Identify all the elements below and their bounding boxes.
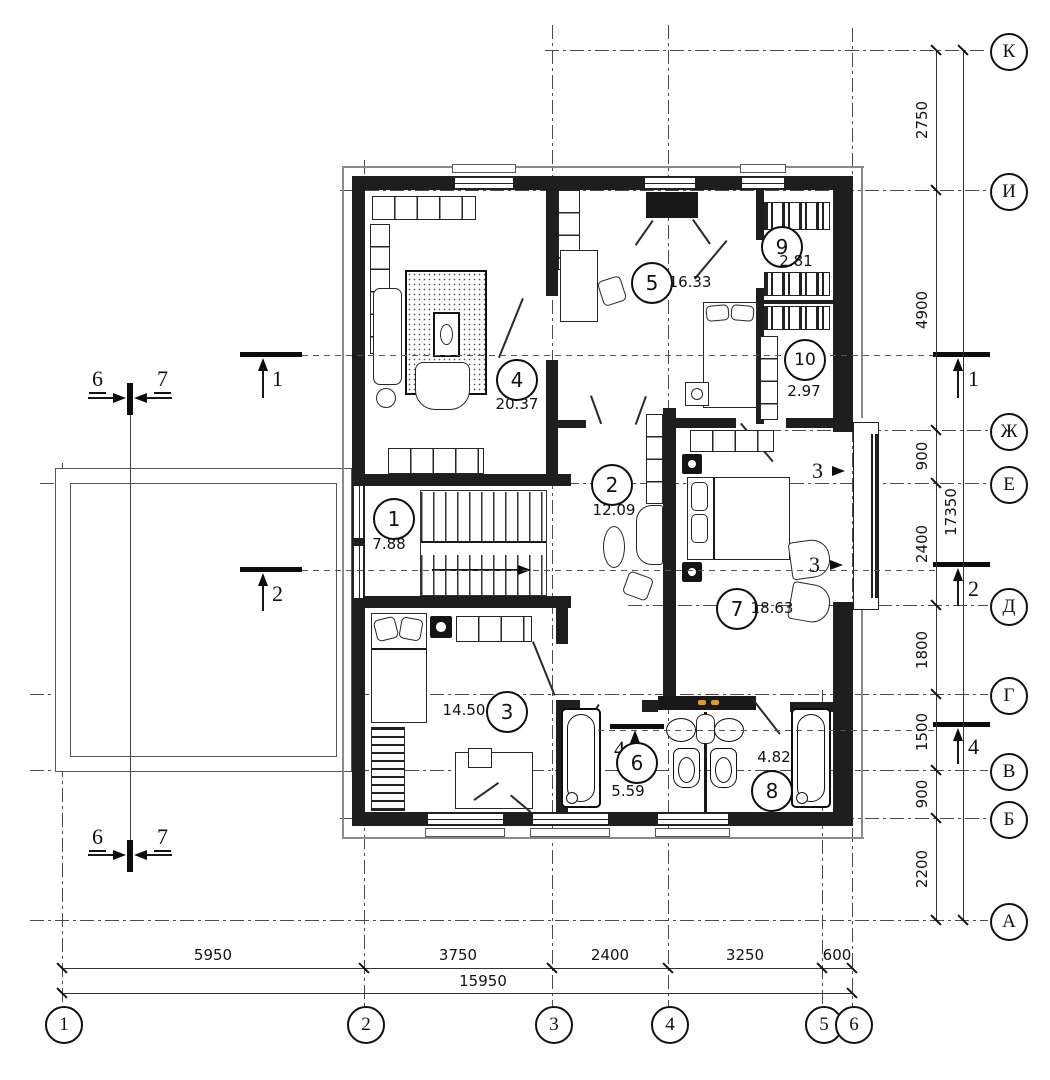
section-marker-bar bbox=[933, 562, 990, 567]
toilet-right bbox=[710, 748, 737, 788]
dim-label-bottom-total: 15950 bbox=[459, 972, 507, 990]
wall-hall-room7 bbox=[663, 408, 676, 702]
dim-label-2-3: 3750 bbox=[439, 946, 477, 964]
axis-bubble-G: Г bbox=[990, 677, 1028, 715]
section-marker-bar bbox=[933, 722, 990, 727]
room-area-4: 20.37 bbox=[496, 395, 539, 413]
wall-room4-room5-a bbox=[546, 190, 558, 296]
section-arrow-icon bbox=[134, 850, 147, 860]
closet-row-room7 bbox=[690, 430, 774, 452]
axis-bubble-2: 2 bbox=[347, 1006, 385, 1044]
section-marker-bar bbox=[610, 724, 664, 729]
dim-label-D-G: 1800 bbox=[913, 631, 931, 669]
faucet-room8 bbox=[796, 792, 808, 804]
pouf-hall bbox=[603, 526, 625, 568]
room-circle-5: 5 bbox=[631, 262, 673, 304]
chair-room5 bbox=[597, 275, 628, 307]
dim-label-3-4: 2400 bbox=[591, 946, 629, 964]
coffee-table-inner bbox=[440, 324, 453, 345]
section-label-4: 4 bbox=[968, 734, 979, 760]
axis-bubble-6: 6 bbox=[835, 1006, 873, 1044]
section-marker-vbar bbox=[127, 840, 133, 872]
sideboard-room4 bbox=[388, 448, 484, 474]
dim-label-G-V: 1500 bbox=[913, 713, 931, 751]
pillow-room5 bbox=[730, 304, 754, 322]
room-circle-6: 6 bbox=[616, 742, 658, 784]
section-arrow-stem bbox=[262, 583, 264, 611]
dim-label-K-I: 2750 bbox=[913, 101, 931, 139]
dim-label-1-2: 5950 bbox=[194, 946, 232, 964]
dim-chain-right-total bbox=[963, 50, 964, 920]
eaves-line-right-bottom bbox=[861, 610, 863, 838]
wall-right-upper bbox=[833, 176, 853, 432]
axis-line-A bbox=[30, 920, 988, 921]
section-arrow-icon bbox=[113, 393, 126, 403]
desk-item-room3 bbox=[468, 748, 492, 768]
dim-label-I-Zh: 4900 bbox=[913, 291, 931, 329]
pillow-room3 bbox=[398, 616, 423, 641]
washing-machine-drum bbox=[691, 388, 703, 400]
dim-label-4-5: 3250 bbox=[726, 946, 764, 964]
wall-closet9-10-divider bbox=[760, 300, 833, 304]
section-arrow-icon bbox=[830, 560, 843, 570]
axis-bubble-D: Д bbox=[990, 588, 1028, 626]
door-leaf-hall-room5-left bbox=[590, 395, 602, 424]
section-arrow-stem bbox=[88, 397, 116, 399]
staircase-landing-line bbox=[421, 541, 546, 543]
wall-room3-room6-a bbox=[556, 608, 568, 644]
floor-lamp-room4 bbox=[376, 388, 396, 408]
armchair-room4 bbox=[415, 362, 470, 410]
window-left-2 bbox=[352, 546, 365, 598]
window-top-3 bbox=[742, 176, 784, 190]
flue-mark-right bbox=[692, 219, 711, 245]
axis-bubble-E: Е bbox=[990, 466, 1028, 504]
section-marker-bar bbox=[240, 352, 302, 357]
window-top-1 bbox=[455, 176, 513, 190]
axis-bubble-Zh: Ж bbox=[990, 413, 1028, 451]
wall-hall-room5-a bbox=[558, 420, 586, 428]
wc-counter-fixture bbox=[698, 700, 706, 705]
room-circle-10: 10 bbox=[784, 339, 826, 381]
section-arrow-stem bbox=[144, 854, 172, 856]
sofa-room4 bbox=[373, 288, 402, 385]
section-arrow-stem bbox=[957, 578, 959, 606]
desk-room3 bbox=[455, 752, 533, 809]
flue-mark-left bbox=[635, 220, 654, 246]
staircase-upper-flight bbox=[421, 492, 546, 541]
armchair-hall bbox=[636, 505, 663, 565]
shelf-rack-closet9 bbox=[764, 202, 830, 230]
desk-room5 bbox=[560, 250, 598, 322]
window-left-1 bbox=[352, 486, 365, 538]
section-arrow-stem bbox=[957, 738, 959, 764]
window-bottom-1 bbox=[428, 812, 503, 826]
section-label-2: 2 bbox=[968, 576, 979, 602]
axis-bubble-B: Б bbox=[990, 801, 1028, 839]
room-circle-2: 2 bbox=[591, 464, 633, 506]
axis-bubble-4: 4 bbox=[651, 1006, 689, 1044]
axis-bubble-3: 3 bbox=[535, 1006, 573, 1044]
room-area-7: 18.63 bbox=[751, 599, 794, 617]
pillow-room7 bbox=[691, 514, 708, 543]
armchair-room7 bbox=[787, 581, 833, 625]
flue-room5 bbox=[646, 192, 698, 218]
shelf-rack-closet9-10 bbox=[764, 272, 830, 296]
shelf-rack-closet10 bbox=[764, 306, 830, 330]
wall-room4-stairs bbox=[365, 474, 571, 486]
pillow-room7 bbox=[691, 482, 708, 511]
staircase-lower-flight bbox=[421, 555, 546, 595]
bed-cover-line-room7 bbox=[713, 478, 715, 559]
section-marker-bar bbox=[933, 352, 990, 357]
axis-line-3 bbox=[552, 25, 553, 1006]
room-circle-1: 1 bbox=[373, 498, 415, 540]
axis-bubble-1: 1 bbox=[45, 1006, 83, 1044]
vanity-center bbox=[696, 714, 715, 744]
section-arrow-stem bbox=[144, 397, 172, 399]
section-label-6: 6 bbox=[89, 824, 106, 852]
dim-label-V-B: 900 bbox=[913, 780, 931, 809]
wc-counter bbox=[658, 696, 756, 710]
nightstand-room7 bbox=[682, 562, 702, 582]
shelf-column-hall bbox=[646, 414, 663, 504]
bay-window-glass bbox=[871, 434, 878, 598]
dim-chain-bottom bbox=[62, 968, 852, 969]
section-label-1: 1 bbox=[272, 366, 283, 392]
axis-bubble-A: А bbox=[990, 903, 1028, 941]
window-top-2 bbox=[645, 176, 695, 190]
window-sill bbox=[655, 828, 730, 837]
room-area-8: 4.82 bbox=[757, 748, 790, 766]
axis-bubble-K: К bbox=[990, 33, 1028, 71]
section-cut-2 bbox=[258, 570, 936, 571]
section-label-7: 7 bbox=[154, 366, 171, 394]
room-circle-8: 8 bbox=[751, 770, 793, 812]
wall-stairs-room3 bbox=[365, 596, 571, 608]
section-marker-vbar bbox=[127, 383, 133, 415]
wc-counter-fixture bbox=[711, 700, 719, 705]
dim-label-right-total: 17350 bbox=[942, 488, 960, 536]
section-arrow-icon bbox=[113, 850, 126, 860]
bed-cover-line-room3 bbox=[372, 648, 426, 650]
wall-room5-room7-b bbox=[786, 418, 833, 428]
room-area-2: 12.09 bbox=[593, 501, 636, 519]
axis-line-I bbox=[340, 190, 988, 191]
window-bottom-3 bbox=[658, 812, 728, 826]
section-label-3: 3 bbox=[812, 458, 823, 484]
section-label-2: 2 bbox=[272, 581, 283, 607]
section-label-7: 7 bbox=[154, 824, 171, 852]
chair-hall bbox=[622, 570, 655, 601]
eaves-line-bottom bbox=[342, 837, 864, 839]
nightstand-room3 bbox=[430, 616, 452, 638]
cabinet-row-room4 bbox=[372, 196, 476, 220]
room-area-1: 7.88 bbox=[372, 535, 405, 553]
faucet-room6 bbox=[566, 792, 578, 804]
floor-plan-drawing: 1 1 2 2 4 4 3 3 6 7 6 7 2750 490 bbox=[0, 0, 1050, 1080]
wall-right-lower bbox=[833, 602, 853, 826]
dim-label-E-D: 2400 bbox=[913, 525, 931, 563]
window-sill bbox=[452, 164, 516, 173]
section-label-1: 1 bbox=[968, 366, 979, 392]
eaves-line-right-top bbox=[861, 166, 863, 418]
section-arrow-stem bbox=[88, 854, 116, 856]
axis-line-K bbox=[545, 50, 988, 51]
wall-room4-room5-b bbox=[546, 360, 558, 474]
dim-chain-bottom-total bbox=[62, 993, 852, 994]
shelf-row-room3 bbox=[456, 616, 532, 642]
section-arrow-icon bbox=[832, 466, 845, 476]
door-leaf-room4 bbox=[498, 298, 524, 358]
axis-bubble-V: В bbox=[990, 753, 1028, 791]
section-arrow-stem bbox=[262, 368, 264, 398]
room-area-3: 14.50 bbox=[443, 701, 486, 719]
room-area-10: 2.97 bbox=[787, 382, 820, 400]
wardrobe-room3 bbox=[371, 727, 405, 811]
section-cut-1 bbox=[258, 355, 936, 356]
wall-closet9-a bbox=[756, 190, 764, 240]
dim-label-Zh-E: 900 bbox=[913, 442, 931, 471]
section-cut-4 bbox=[598, 730, 936, 731]
nightstand-room7 bbox=[682, 454, 702, 474]
section-arrow-icon bbox=[134, 393, 147, 403]
window-bottom-2 bbox=[533, 812, 608, 826]
room-circle-3: 3 bbox=[486, 691, 528, 733]
dim-label-5-6: 600 bbox=[823, 946, 852, 964]
section-marker-bar bbox=[240, 567, 302, 572]
window-sill bbox=[740, 164, 786, 173]
room-area-5: 16.33 bbox=[669, 273, 712, 291]
wall-bath6-top-b bbox=[642, 700, 658, 712]
wall-room5-room7-a bbox=[676, 418, 736, 428]
section-arrow-stem bbox=[957, 368, 959, 398]
cabinet-closet10 bbox=[760, 336, 778, 420]
section-cut-6-7 bbox=[130, 398, 131, 856]
room-area-6: 5.59 bbox=[611, 782, 644, 800]
section-label-3: 3 bbox=[809, 552, 820, 578]
section-label-6: 6 bbox=[89, 366, 106, 394]
terrace-inner bbox=[70, 483, 337, 757]
eaves-line-left bbox=[342, 166, 344, 838]
axis-bubble-I: И bbox=[990, 173, 1028, 211]
window-sill bbox=[530, 828, 610, 837]
room-area-9: 2.81 bbox=[779, 252, 812, 270]
window-sill bbox=[425, 828, 505, 837]
pillow-room5 bbox=[705, 304, 729, 322]
toilet-left bbox=[673, 748, 700, 788]
dim-label-B-A: 2200 bbox=[913, 850, 931, 888]
